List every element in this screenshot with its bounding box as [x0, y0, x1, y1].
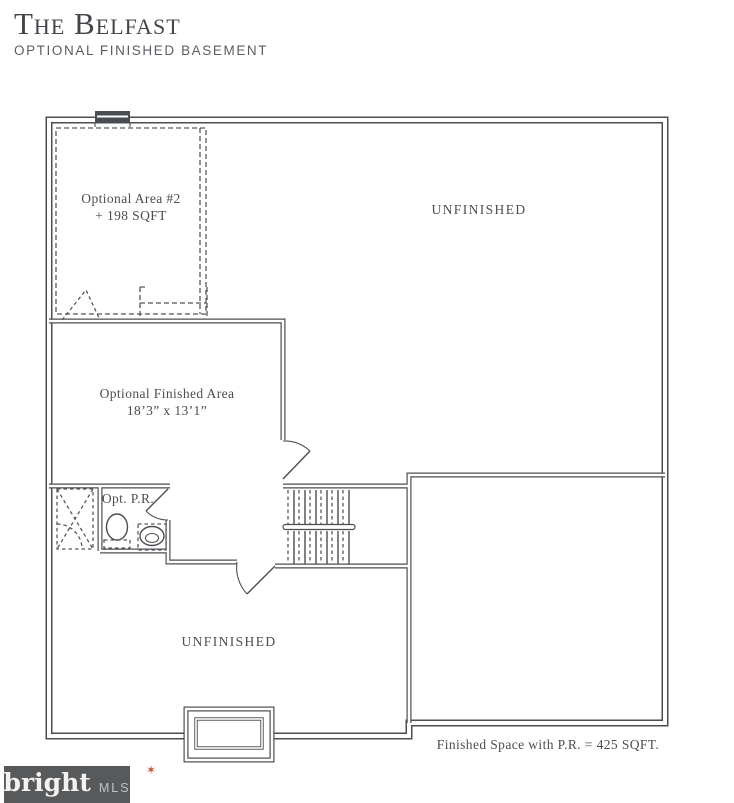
floor-plan-page: { "header": { "title": "The Belfast", "s… — [0, 0, 734, 803]
optional-finished-area-label: Optional Finished Area — [100, 386, 235, 401]
interior-walls — [49, 321, 665, 723]
stair-landing-edge — [283, 525, 355, 530]
egress-areaway — [186, 709, 272, 760]
plan-header: The Belfast OPTIONAL FINISHED BASEMENT — [14, 8, 268, 58]
bright-mls-logo-suffix: MLS — [99, 781, 131, 795]
optional-area-2-sqft: + 198 SQFT — [95, 208, 167, 223]
bright-mls-logo-brand: bright — [3, 770, 90, 795]
plan-subtitle: OPTIONAL FINISHED BASEMENT — [14, 43, 268, 58]
optional-area-2-label: Optional Area #2 — [81, 191, 180, 206]
plan-title: The Belfast — [14, 8, 268, 40]
toilet-icon — [104, 514, 130, 548]
optional-finished-area-dims: 18’3” x 13’1” — [127, 403, 207, 418]
bright-mls-spark-icon: ✶ — [146, 763, 156, 777]
unfinished-bottom-label: UNFINISHED — [182, 634, 277, 649]
door-leaves — [146, 451, 310, 594]
stairs — [283, 490, 355, 564]
optional-area-2-outline — [56, 128, 207, 320]
bright-mls-logo: bright ✶ MLS — [4, 766, 130, 803]
window-icon — [95, 111, 130, 127]
dashed-door-icon — [62, 290, 100, 320]
shower-rough-in-icon — [57, 489, 93, 549]
finished-space-note: Finished Space with P.R. = 425 SQFT. — [437, 737, 659, 752]
sink-icon — [138, 524, 166, 550]
powder-room-label: Opt. P.R. — [102, 491, 154, 506]
unfinished-top-label: UNFINISHED — [432, 202, 527, 217]
door-swing-arcs — [146, 441, 310, 594]
floor-plan-drawing: Optional Area #2 + 198 SQFT UNFINISHED O… — [0, 0, 734, 803]
